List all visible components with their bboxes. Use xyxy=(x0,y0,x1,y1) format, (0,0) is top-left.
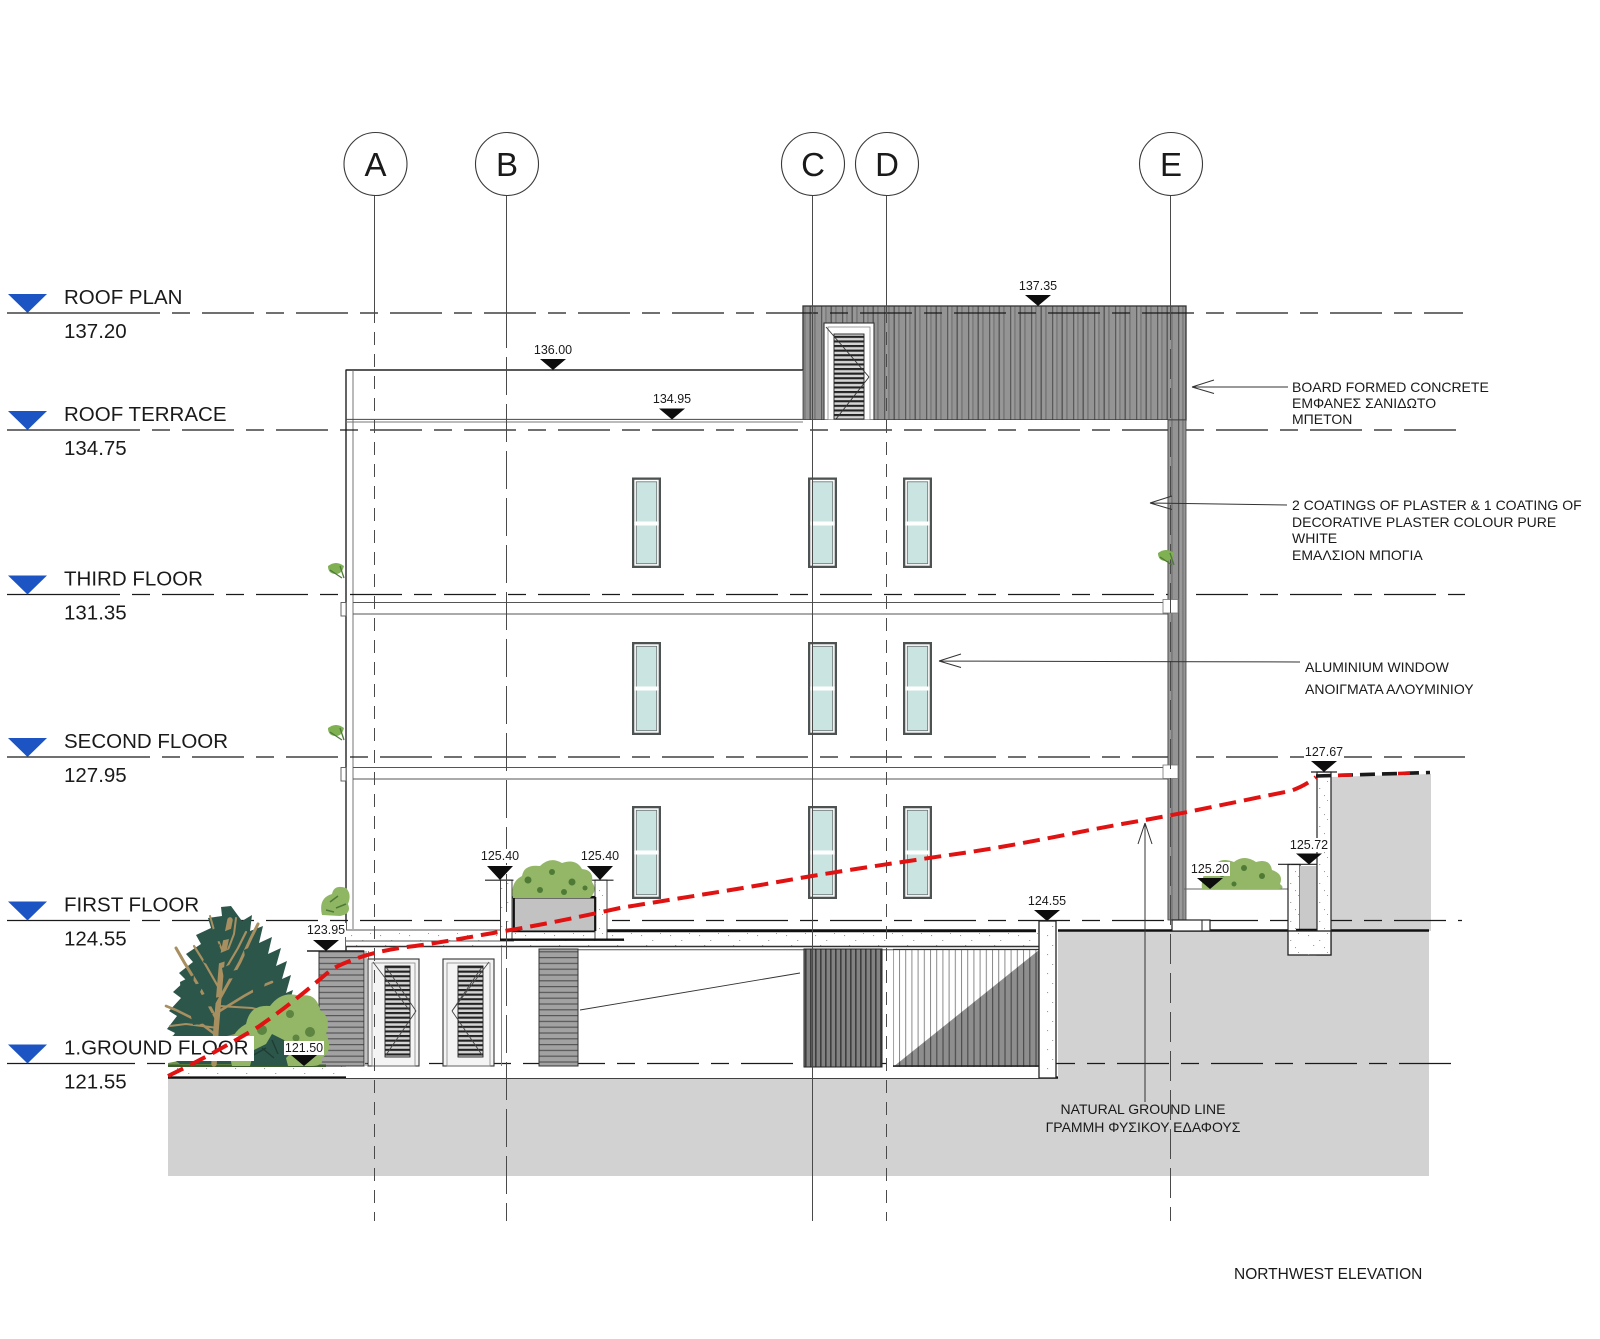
svg-text:121.55: 121.55 xyxy=(64,1071,127,1094)
svg-text:A: A xyxy=(364,146,386,183)
svg-text:DECORATIVE PLASTER COLOUR PURE: DECORATIVE PLASTER COLOUR PURE xyxy=(1292,514,1556,530)
svg-text:127.67: 127.67 xyxy=(1305,745,1343,759)
svg-text:E: E xyxy=(1160,146,1182,183)
svg-text:D: D xyxy=(875,146,899,183)
svg-text:125.72: 125.72 xyxy=(1290,838,1328,852)
svg-text:137.35: 137.35 xyxy=(1019,279,1057,293)
svg-text:124.55: 124.55 xyxy=(64,928,127,951)
svg-text:SECOND FLOOR: SECOND FLOOR xyxy=(64,730,228,753)
svg-text:125.40: 125.40 xyxy=(481,849,519,863)
svg-text:B: B xyxy=(496,146,518,183)
svg-text:C: C xyxy=(801,146,825,183)
svg-text:131.35: 131.35 xyxy=(64,602,127,625)
svg-text:ΜΠΕΤΟΝ: ΜΠΕΤΟΝ xyxy=(1292,411,1352,427)
svg-text:ΑΝΟΙΓΜΑΤΑ ΑΛΟΥΜΙΝΙΟΥ: ΑΝΟΙΓΜΑΤΑ ΑΛΟΥΜΙΝΙΟΥ xyxy=(1305,681,1474,697)
svg-text:ALUMINIUM WINDOW: ALUMINIUM WINDOW xyxy=(1305,659,1450,675)
svg-text:BOARD FORMED CONCRETE: BOARD FORMED CONCRETE xyxy=(1292,379,1489,395)
svg-text:121.50: 121.50 xyxy=(285,1041,323,1055)
svg-text:ROOF TERRACE: ROOF TERRACE xyxy=(64,403,227,426)
svg-text:2 COATINGS OF PLASTER & 1 COAT: 2 COATINGS OF PLASTER & 1 COATING OF xyxy=(1292,497,1582,513)
svg-text:137.20: 137.20 xyxy=(64,320,127,343)
svg-text:NORTHWEST ELEVATION: NORTHWEST ELEVATION xyxy=(1234,1266,1422,1283)
svg-text:136.00: 136.00 xyxy=(534,343,572,357)
svg-text:123.95: 123.95 xyxy=(307,923,345,937)
svg-text:134.75: 134.75 xyxy=(64,437,127,460)
svg-text:ROOF PLAN: ROOF PLAN xyxy=(64,286,182,309)
svg-text:NATURAL GROUND LINE: NATURAL GROUND LINE xyxy=(1061,1101,1226,1117)
svg-text:THIRD FLOOR: THIRD FLOOR xyxy=(64,568,203,591)
svg-text:124.55: 124.55 xyxy=(1028,894,1066,908)
svg-text:127.95: 127.95 xyxy=(64,764,127,787)
svg-text:WHITE: WHITE xyxy=(1292,530,1337,546)
svg-text:125.20: 125.20 xyxy=(1191,862,1229,876)
svg-text:ΕΜΦΑΝΕΣ ΣΑΝΙΔΩΤΟ: ΕΜΦΑΝΕΣ ΣΑΝΙΔΩΤΟ xyxy=(1292,395,1436,411)
svg-text:ΕΜΑΛΣΙΟΝ ΜΠΟΓΙΑ: ΕΜΑΛΣΙΟΝ ΜΠΟΓΙΑ xyxy=(1292,547,1423,563)
svg-text:134.95: 134.95 xyxy=(653,392,691,406)
svg-text:ΓΡΑΜΜΗ ΦΥΣΙΚΟΥ ΕΔΑΦΟΥΣ: ΓΡΑΜΜΗ ΦΥΣΙΚΟΥ ΕΔΑΦΟΥΣ xyxy=(1046,1119,1241,1135)
svg-text:125.40: 125.40 xyxy=(581,849,619,863)
svg-text:FIRST FLOOR: FIRST FLOOR xyxy=(64,894,199,917)
